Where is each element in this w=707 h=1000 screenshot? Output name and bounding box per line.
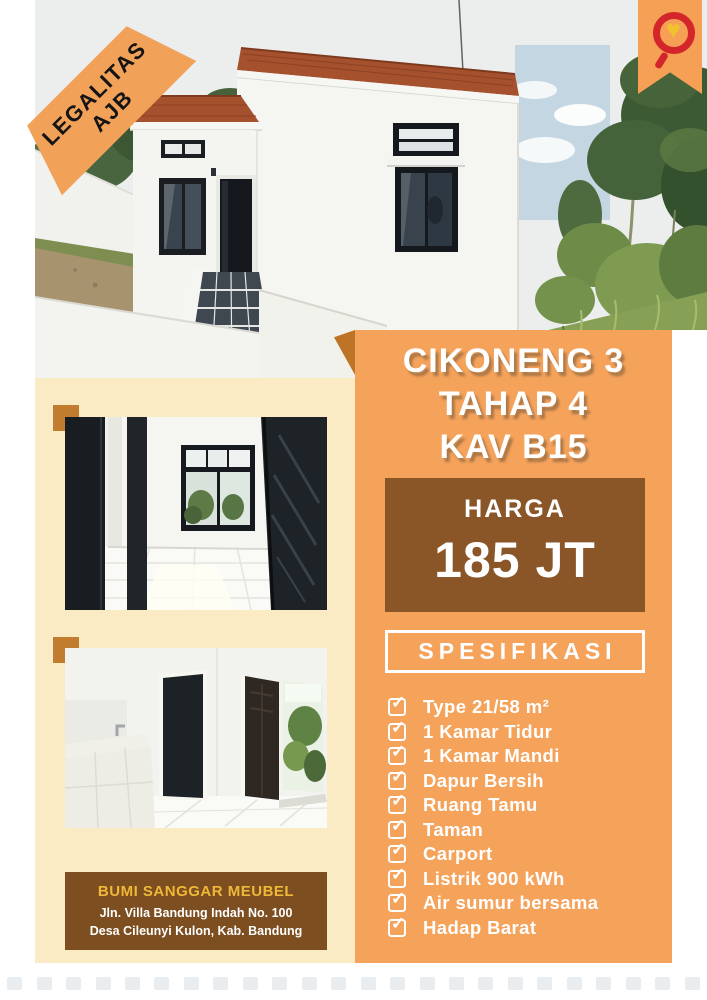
heart-p-logo-icon: ♥: [653, 12, 695, 54]
checkbox-checked-icon: [388, 772, 406, 790]
listing-title-line1: CIKONENG 3: [355, 340, 672, 383]
spec-item-row: Air sumur bersama: [388, 891, 658, 916]
watermark-glyph: [655, 977, 670, 990]
spec-item-row: Hadap Barat: [388, 916, 658, 941]
interior-photo-bedroom: [65, 417, 327, 610]
window-ledge: [387, 158, 465, 166]
spec-item-label: Type 21/58 m²: [423, 696, 549, 718]
watermark-glyph: [96, 977, 111, 990]
spec-item-label: Taman: [423, 819, 483, 841]
watermark-glyph: [184, 977, 199, 990]
contact-address-line1: Jln. Villa Bandung Indah No. 100: [65, 905, 327, 923]
contact-address-line2: Desa Cileunyi Kulon, Kab. Bandung: [65, 923, 327, 941]
interior-photo-kitchen: [65, 648, 327, 828]
kitchen-illustration: [65, 648, 327, 828]
logo-tail: [654, 51, 669, 69]
checkbox-checked-icon: [388, 796, 406, 814]
spec-list: Type 21/58 m²1 Kamar Tidur1 Kamar MandiD…: [388, 695, 658, 940]
watermark-glyph: [390, 977, 405, 990]
watermark-glyph: [537, 977, 552, 990]
watermark-glyph: [508, 977, 523, 990]
spec-item-row: Ruang Tamu: [388, 793, 658, 818]
listing-title: CIKONENG 3 TAHAP 4 KAV B15: [355, 330, 672, 469]
spec-item-row: Listrik 900 kWh: [388, 867, 658, 892]
watermark-glyph: [272, 977, 287, 990]
checkbox-checked-icon: [388, 845, 406, 863]
hallway-doorway: [159, 670, 207, 800]
watermark-glyph: [7, 977, 22, 990]
spec-item-row: Taman: [388, 818, 658, 843]
contact-address: Jln. Villa Bandung Indah No. 100 Desa Ci…: [65, 905, 327, 940]
price-label: HARGA: [385, 495, 645, 524]
right-margin-patch: [672, 330, 707, 378]
logo-heart-icon: ♥: [666, 16, 681, 45]
watermark-glyph: [243, 977, 258, 990]
watermark-glyph: [596, 977, 611, 990]
bedroom-illustration: [65, 417, 327, 610]
price-value: 185 JT: [385, 531, 645, 589]
left-panel: BUMI SANGGAR MEUBEL Jln. Villa Bandung I…: [35, 378, 355, 963]
spec-item-label: 1 Kamar Mandi: [423, 745, 560, 767]
door-frame: [127, 417, 147, 610]
left-door-leaf: [65, 417, 105, 610]
watermark-glyph: [478, 977, 493, 990]
spec-item-label: 1 Kamar Tidur: [423, 721, 552, 743]
checkbox-checked-icon: [388, 870, 406, 888]
checkbox-checked-icon: [388, 919, 406, 937]
flyer-page: LEGALITAS AJB ♥: [0, 0, 707, 1000]
watermark-glyph: [66, 977, 81, 990]
spec-item-label: Listrik 900 kWh: [423, 868, 565, 890]
watermark-glyph: [626, 977, 641, 990]
spec-item-label: Ruang Tamu: [423, 794, 538, 816]
spec-item-row: Carport: [388, 842, 658, 867]
watermark-row: [0, 970, 707, 996]
watermark-glyph: [685, 977, 700, 990]
spec-item-row: 1 Kamar Mandi: [388, 744, 658, 769]
spec-item-label: Carport: [423, 843, 493, 865]
listing-title-line3: KAV B15: [355, 426, 672, 469]
right-main-window: [395, 167, 458, 252]
right-transom-window: [393, 123, 459, 156]
watermark-glyph: [449, 977, 464, 990]
watermark-glyph: [213, 977, 228, 990]
watermark-glyph: [420, 977, 435, 990]
open-back-door: [241, 676, 279, 800]
right-panel: CIKONENG 3 TAHAP 4 KAV B15 HARGA 185 JT …: [355, 330, 672, 963]
listing-title-line2: TAHAP 4: [355, 383, 672, 426]
contact-card: BUMI SANGGAR MEUBEL Jln. Villa Bandung I…: [65, 872, 327, 950]
spec-heading-box: SPESIFIKASI: [385, 630, 645, 673]
spec-item-row: 1 Kamar Tidur: [388, 720, 658, 745]
bedroom-window: [181, 445, 255, 531]
contact-name: BUMI SANGGAR MEUBEL: [65, 883, 327, 900]
checkbox-checked-icon: [388, 723, 406, 741]
right-door-leaf: [261, 417, 327, 610]
watermark-glyph: [567, 977, 582, 990]
price-card: HARGA 185 JT: [385, 478, 645, 612]
spec-heading: SPESIFIKASI: [418, 638, 616, 664]
watermark-glyph: [361, 977, 376, 990]
spec-item-row: Type 21/58 m²: [388, 695, 658, 720]
porch-transom-window: [161, 140, 205, 158]
porch-window: [159, 178, 206, 255]
checkbox-checked-icon: [388, 747, 406, 765]
watermark-glyph: [302, 977, 317, 990]
watermark-glyph: [125, 977, 140, 990]
watermark-glyph: [154, 977, 169, 990]
front-door: [216, 175, 256, 283]
watermark-glyph: [331, 977, 346, 990]
checkbox-checked-icon: [388, 894, 406, 912]
spec-item-label: Dapur Bersih: [423, 770, 544, 792]
spec-item-row: Dapur Bersih: [388, 769, 658, 794]
door-opening-outdoors: [279, 680, 327, 808]
spec-item-label: Air sumur bersama: [423, 892, 598, 914]
checkbox-checked-icon: [388, 698, 406, 716]
checkbox-checked-icon: [388, 821, 406, 839]
wall-lamp: [211, 168, 216, 176]
spec-item-label: Hadap Barat: [423, 917, 536, 939]
watermark-glyph: [37, 977, 52, 990]
